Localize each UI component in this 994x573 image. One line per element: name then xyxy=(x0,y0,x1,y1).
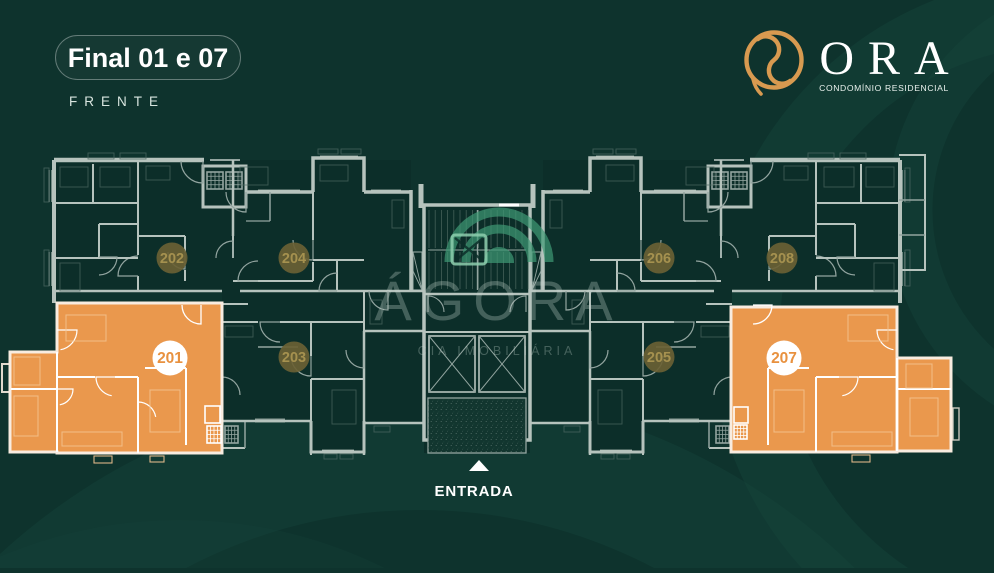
svg-text:202: 202 xyxy=(160,251,184,267)
svg-text:ORA: ORA xyxy=(819,32,962,85)
svg-text:206: 206 xyxy=(647,251,671,267)
svg-text:CIA IMOBILIÁRIA: CIA IMOBILIÁRIA xyxy=(418,343,577,358)
svg-text:205: 205 xyxy=(647,350,671,366)
svg-text:207: 207 xyxy=(771,350,797,367)
svg-text:204: 204 xyxy=(282,251,306,267)
svg-text:208: 208 xyxy=(770,251,794,267)
svg-text:ENTRADA: ENTRADA xyxy=(435,483,514,500)
svg-text:ÁGORA: ÁGORA xyxy=(374,269,621,332)
svg-text:Final 01 e 07: Final 01 e 07 xyxy=(68,43,229,73)
svg-text:FRENTE: FRENTE xyxy=(69,94,165,109)
svg-text:201: 201 xyxy=(157,350,183,367)
svg-text:CONDOMÍNIO RESIDENCIAL: CONDOMÍNIO RESIDENCIAL xyxy=(819,83,949,93)
svg-text:203: 203 xyxy=(282,350,306,366)
